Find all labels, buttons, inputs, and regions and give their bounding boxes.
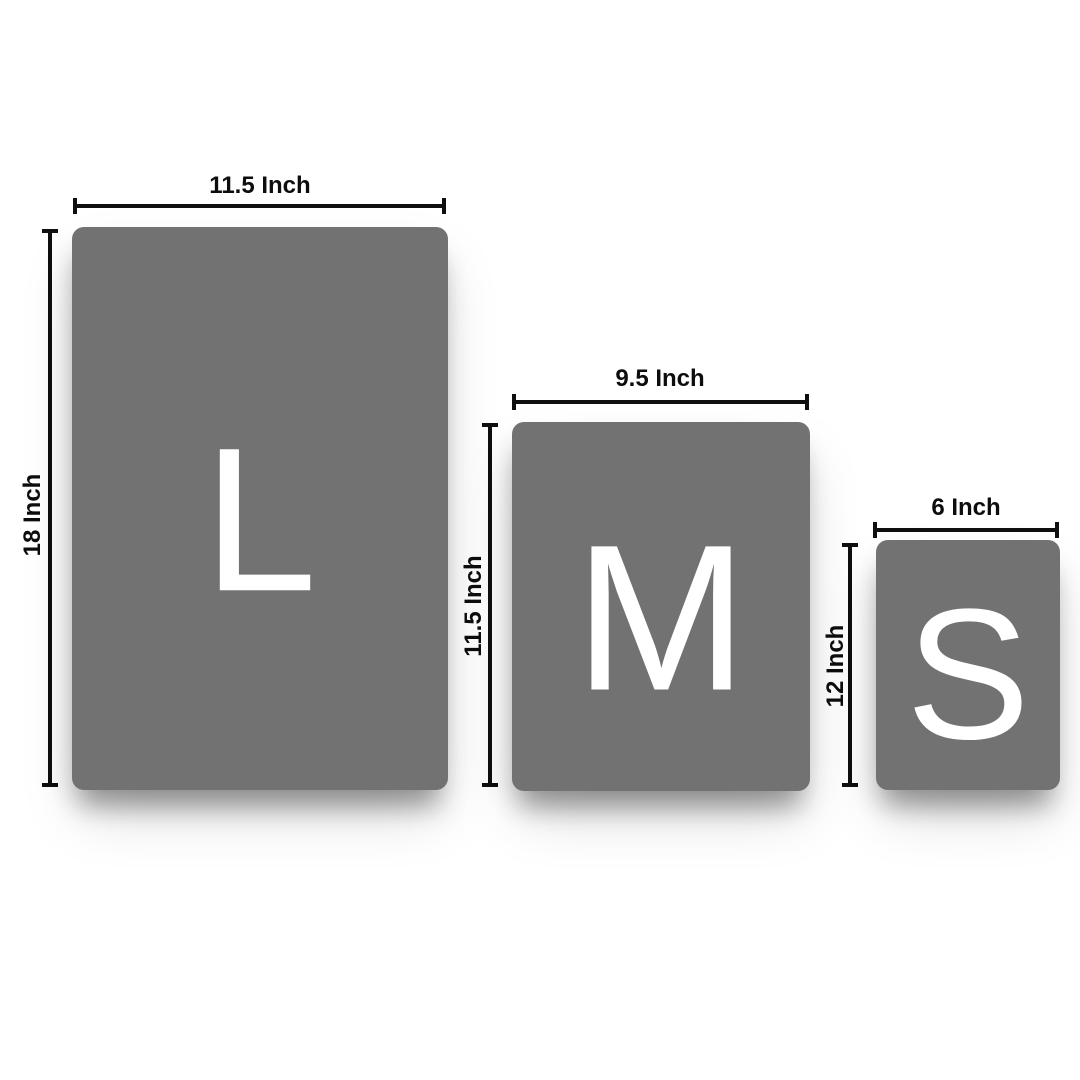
medium-width-dimension-line xyxy=(512,400,809,404)
small-width-dimension-line xyxy=(873,528,1059,532)
medium-size-board: M xyxy=(512,422,810,791)
large-width-dimension-label: 11.5 Inch xyxy=(160,170,360,202)
large-height-dimension-line xyxy=(48,229,52,787)
large-width-dimension-line xyxy=(73,204,446,208)
small-width-dimension-label: 6 Inch xyxy=(866,492,1066,524)
small-size-board: S xyxy=(876,540,1060,790)
size-comparison-diagram: 11.5 Inch 18 Inch L 9.5 Inch 11.5 Inch M… xyxy=(0,0,1080,1080)
medium-size-letter: M xyxy=(574,514,747,722)
medium-height-dimension-line xyxy=(488,423,492,787)
large-size-board: L xyxy=(72,227,448,790)
large-height-dimension-label: 18 Inch xyxy=(17,415,49,615)
medium-height-dimension-label: 11.5 Inch xyxy=(458,506,490,706)
small-height-dimension-line xyxy=(848,543,852,787)
large-size-letter: L xyxy=(203,417,317,622)
medium-width-dimension-label: 9.5 Inch xyxy=(560,363,760,395)
small-size-letter: S xyxy=(906,582,1030,768)
